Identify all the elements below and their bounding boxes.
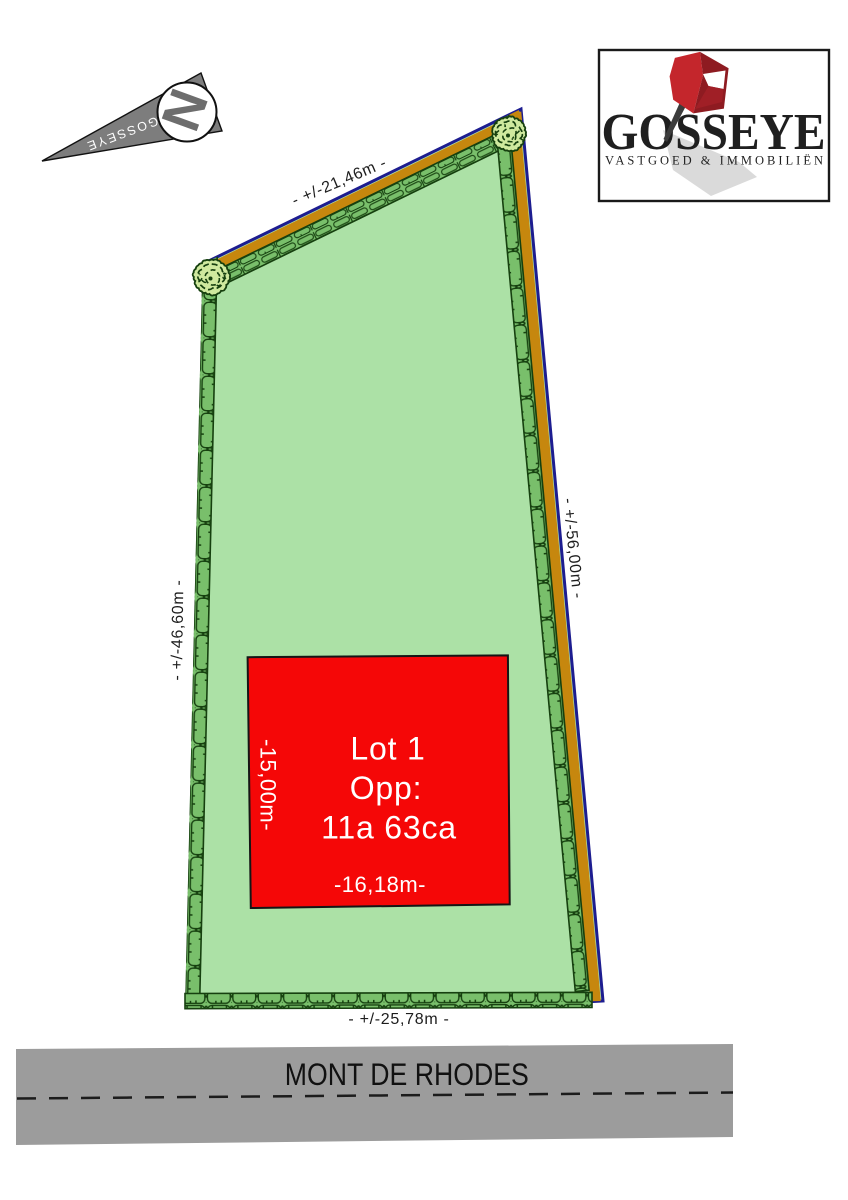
svg-text:Lot 1: Lot 1	[350, 731, 425, 767]
svg-text:-15,00m-: -15,00m-	[255, 739, 280, 831]
svg-text:VASTGOED & IMMOBILIËN: VASTGOED & IMMOBILIËN	[605, 154, 823, 168]
svg-text:MONT DE RHODES: MONT DE RHODES	[285, 1056, 529, 1092]
svg-text:11a 63ca: 11a 63ca	[321, 810, 457, 846]
svg-text:GOSSEYE: GOSSEYE	[602, 104, 826, 161]
svg-text:- +/-25,78m -: - +/-25,78m -	[348, 1011, 449, 1028]
svg-text:-16,18m-: -16,18m-	[334, 872, 426, 897]
svg-text:Opp:: Opp:	[350, 770, 423, 806]
svg-text:- +/-46,60m -: - +/-46,60m -	[169, 579, 188, 680]
